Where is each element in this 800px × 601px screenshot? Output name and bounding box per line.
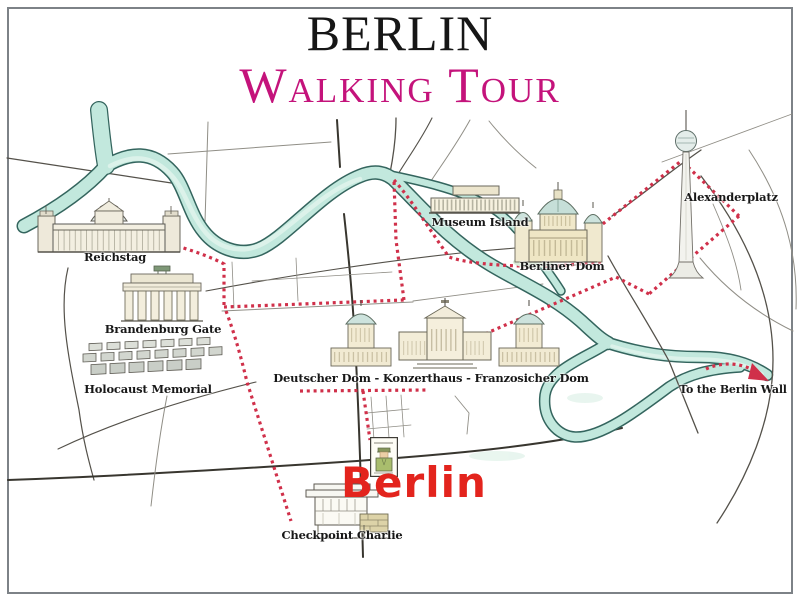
label-to-berlin-wall: To the Berlin Wall: [679, 383, 787, 396]
label-alexanderplatz: Alexanderplatz: [684, 190, 778, 204]
label-berliner-dom: Berliner Dom: [520, 259, 605, 273]
gendarmenmarkt-illustration: [331, 298, 559, 368]
roads-over: [608, 150, 796, 523]
label-reichstag: Reichstag: [84, 250, 146, 264]
holocaust-memorial-illustration: [83, 337, 222, 375]
label-brandenburg-gate: Brandenburg Gate: [105, 322, 222, 336]
berlin-walking-tour-poster: BERLIN Walking Tour: [0, 0, 800, 601]
label-museum-island: Museum Island: [432, 215, 529, 229]
park-tints: [469, 393, 603, 461]
label-checkpoint-charlie: Checkpoint Charlie: [281, 528, 402, 542]
map-canvas: [0, 0, 800, 601]
label-gendarmenmarkt: Deutscher Dom - Konzerthaus - Franzosich…: [273, 371, 588, 385]
berlin-stamp: Berlin: [341, 458, 487, 507]
brandenburg-gate-illustration: [121, 266, 203, 321]
label-holocaust-memorial: Holocaust Memorial: [84, 382, 212, 396]
